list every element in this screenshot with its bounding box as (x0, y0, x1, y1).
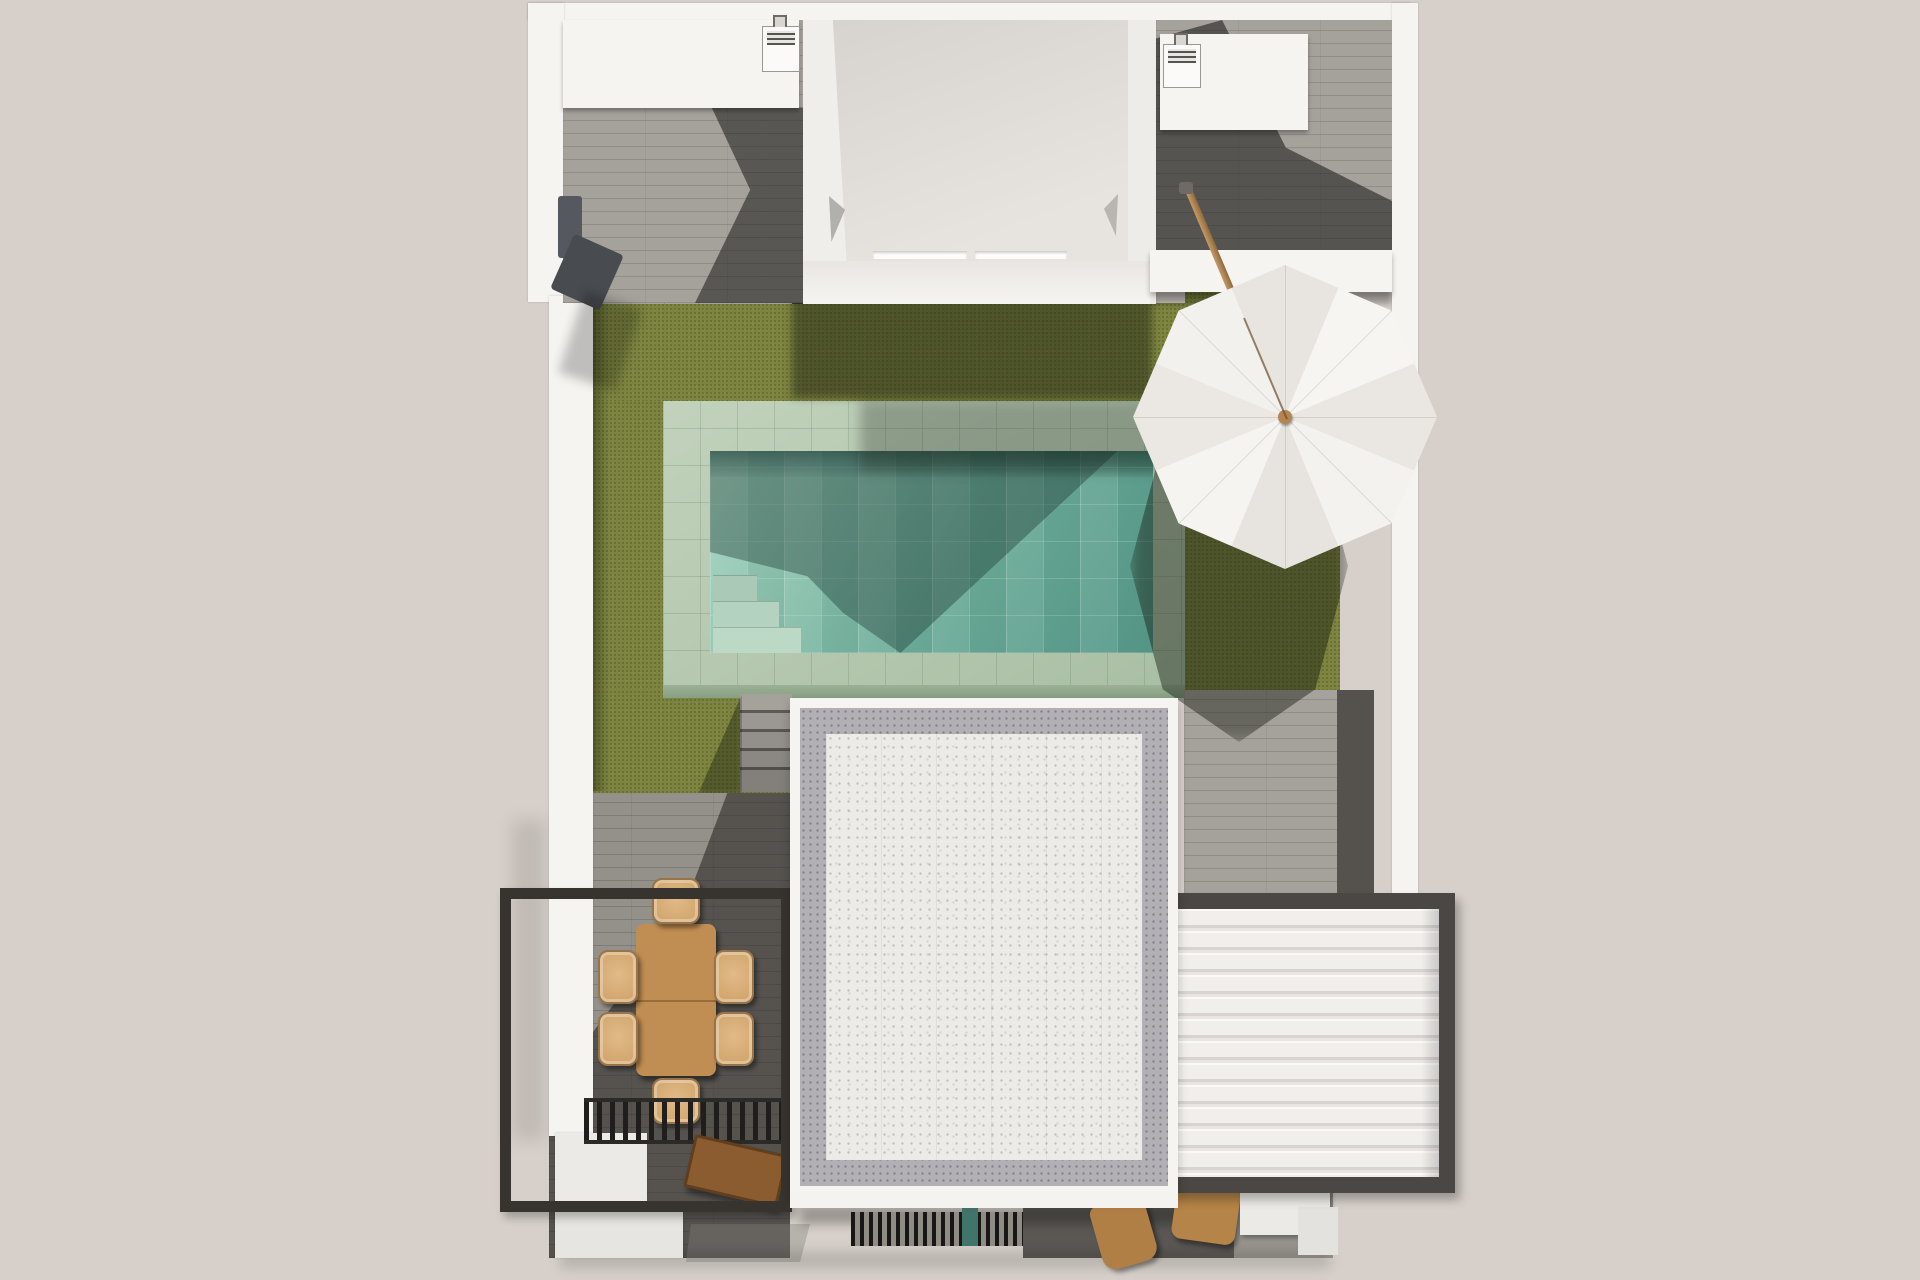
white-curb-2 (1298, 1207, 1338, 1255)
central-wing-south-parapet (803, 261, 1150, 304)
roof-gravel-field (826, 734, 1142, 1160)
main-roof (790, 698, 1178, 1196)
garden-steps (740, 694, 792, 792)
step-tread (740, 732, 792, 751)
roof-panel-seams (826, 734, 1142, 1160)
ac-grill (767, 31, 795, 45)
ac-pipes (1174, 33, 1188, 45)
roof-south-parapet (790, 1192, 1178, 1208)
step-tread (740, 713, 792, 732)
ac-pipes (773, 15, 787, 27)
dining-pergola-frame (500, 888, 792, 1212)
pool-step-2 (713, 601, 779, 627)
pool-step-1 (713, 575, 757, 601)
skylight-slot-left (873, 251, 967, 259)
floor-grate (851, 1212, 1023, 1246)
pool-water (710, 451, 1153, 653)
step-tread (740, 694, 792, 713)
pool-step-3 (713, 627, 801, 653)
skylight-slot-right (975, 251, 1067, 259)
louvered-pergola (1170, 893, 1455, 1193)
step-tread (740, 770, 792, 792)
entry-paving-lower (555, 1208, 683, 1258)
pool-equipment-green (962, 1206, 978, 1246)
perimeter-wall-top (528, 3, 1410, 20)
ac-unit-right (1163, 44, 1201, 88)
louver-end-shading (1421, 909, 1439, 1177)
umbrella-pole-base (1179, 182, 1193, 194)
ac-unit-left (762, 26, 800, 72)
ac-grill (1168, 49, 1196, 63)
step-tread (740, 751, 792, 770)
villa-aerial-render (0, 0, 1920, 1280)
pergola-louvers (1170, 909, 1439, 1177)
dark-walkway (1337, 690, 1374, 895)
